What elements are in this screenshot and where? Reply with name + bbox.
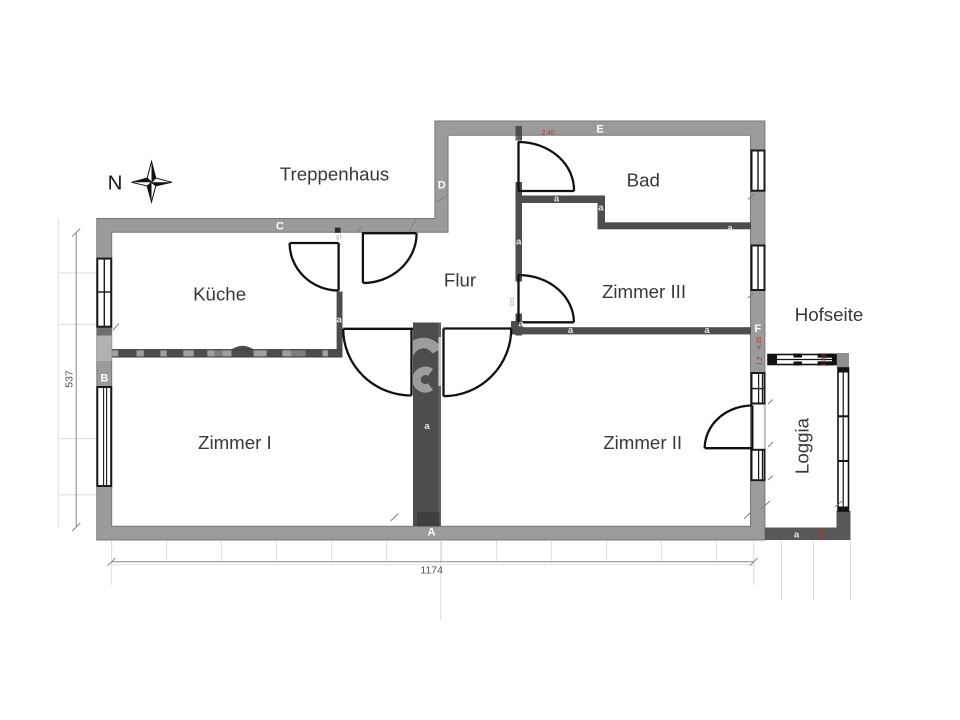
- svg-text:Zimmer II: Zimmer II: [603, 432, 682, 453]
- svg-text:N: N: [108, 172, 123, 195]
- svg-text:Flur: Flur: [444, 270, 476, 291]
- svg-text:4,25: 4,25: [756, 336, 763, 349]
- svg-text:537: 537: [63, 370, 75, 388]
- svg-text:A: A: [428, 527, 436, 539]
- svg-text:Loggia: Loggia: [792, 417, 813, 474]
- svg-text:1,53: 1,53: [818, 528, 825, 541]
- svg-text:a: a: [337, 315, 343, 326]
- svg-text:1,2: 1,2: [757, 356, 764, 365]
- svg-text:D: D: [438, 180, 446, 192]
- svg-text:a: a: [727, 223, 733, 234]
- svg-text:2,40: 2,40: [542, 130, 555, 137]
- svg-text:Küche: Küche: [193, 284, 246, 305]
- svg-text:F: F: [754, 323, 761, 335]
- svg-text:Treppenhaus: Treppenhaus: [280, 164, 389, 185]
- svg-text:B: B: [100, 373, 108, 385]
- svg-text:a: a: [794, 530, 800, 541]
- svg-text:Bad: Bad: [627, 170, 660, 191]
- svg-text:Zimmer III: Zimmer III: [602, 281, 686, 302]
- svg-text:a: a: [518, 319, 524, 330]
- svg-text:1174: 1174: [420, 564, 443, 576]
- svg-text:a: a: [568, 325, 574, 336]
- svg-text:a: a: [704, 325, 710, 336]
- svg-text:Zimmer I: Zimmer I: [198, 432, 272, 453]
- svg-text:a: a: [424, 421, 430, 432]
- svg-text:E: E: [596, 124, 603, 136]
- svg-text:Hofseite: Hofseite: [795, 304, 864, 325]
- svg-text:a: a: [516, 237, 522, 248]
- svg-text:a: a: [598, 203, 604, 214]
- svg-text:1,80: 1,80: [821, 353, 828, 366]
- svg-text:C: C: [276, 221, 284, 233]
- svg-text:a: a: [554, 194, 560, 205]
- svg-text:87: 87: [336, 236, 342, 242]
